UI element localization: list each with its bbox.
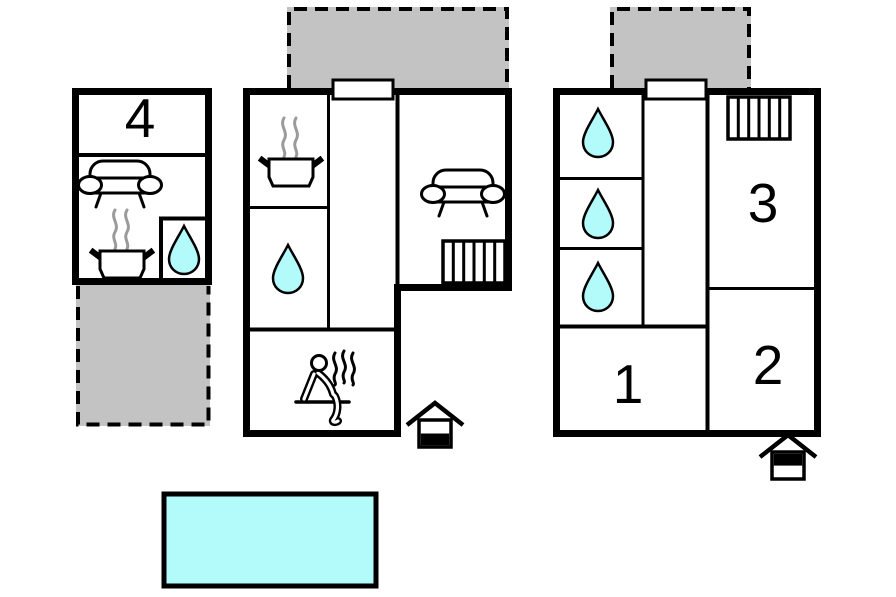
door (646, 80, 706, 99)
room-label-1: 1 (613, 353, 644, 415)
room-label-3: 3 (748, 172, 779, 234)
door (333, 80, 393, 99)
terrace-left-area (76, 285, 210, 426)
terrace-middle (287, 7, 509, 88)
terrace-left (76, 285, 210, 426)
entrance-icon-ground (407, 403, 463, 447)
terrace-right-area (610, 7, 751, 88)
room-label-4: 4 (125, 87, 156, 149)
swimming-pool (164, 494, 376, 586)
entrance-icon-upper (760, 435, 816, 479)
stairs-icon (728, 97, 790, 139)
terrace-right (610, 7, 751, 88)
stairs-icon (443, 241, 505, 283)
room-label-2: 2 (753, 334, 784, 396)
floor-plan: 4 (0, 0, 896, 597)
building-middle (246, 80, 509, 447)
terrace-middle-area (287, 7, 509, 88)
floor-plan-canvas: 4 (0, 0, 896, 597)
building-right: 1 2 3 (556, 80, 818, 479)
building-left: 4 (75, 87, 209, 282)
